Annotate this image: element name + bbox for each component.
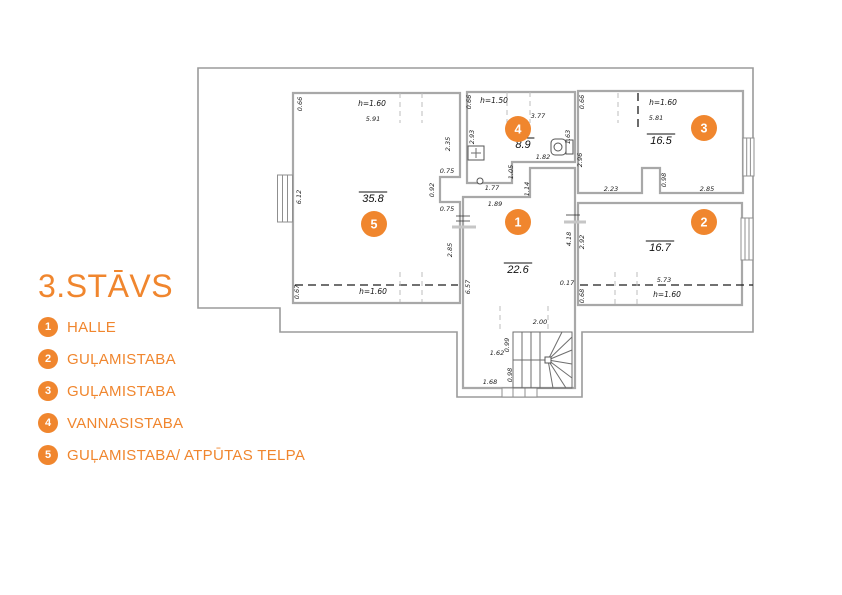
legend-item-label: HALLE [67,319,116,336]
dimension-label: 2.93 [468,130,476,144]
page-title: 3.STĀVS [38,268,305,305]
dimension-label: 1.05 [507,165,515,179]
room-marker-5: 5 [361,211,387,237]
room-marker-3: 3 [691,115,717,141]
dimension-label: 0.75 [440,167,454,175]
dimension-label: 1.82 [536,153,550,161]
dimension-label: 0.66 [578,95,586,109]
dimension-label: 0.98 [660,173,668,187]
dimension-label: h=1.60 [653,290,681,299]
svg-text:3: 3 [701,122,708,136]
dimension-label: 2.35 [444,137,452,151]
dimension-label: h=1.60 [358,99,386,108]
window-room2-right [741,218,753,260]
legend-item-number: 1 [38,317,58,337]
dimension-label: 2.00 [533,318,547,326]
dimension-label: 1.62 [490,349,504,357]
legend: 3.STĀVS 1HALLE2GUĻAMISTABA3GUĻAMISTABA4V… [38,268,305,465]
dimension-label: 5.73 [657,276,671,284]
legend-item-number: 5 [38,445,58,465]
dimension-label: 0.17 [560,279,575,287]
dimension-label: 2.96 [576,153,584,167]
dimension-label: 5.91 [366,115,380,123]
room-marker-2: 2 [691,209,717,235]
dimension-label: 0.66 [296,97,304,111]
stair-newel [545,357,551,363]
dimension-label: 5.81 [649,114,663,122]
legend-item-2: 2GUĻAMISTABA [38,349,305,369]
staircase [513,332,572,388]
legend-item-4: 4VANNASISTABA [38,413,305,433]
svg-text:5: 5 [371,218,378,232]
dimension-label: 1.63 [564,130,572,144]
dimension-label: h=1.60 [359,287,387,296]
room-area-label: 35.8 [362,193,384,205]
dimension-label: 0.66 [465,95,473,109]
svg-text:1: 1 [515,216,522,230]
legend-item-label: GUĻAMISTABA/ ATPŪTAS TELPA [67,447,305,464]
dimension-label: 1.68 [483,378,497,386]
room-area-label: 22.6 [506,264,529,276]
legend-item-number: 4 [38,413,58,433]
dimension-label: 6.57 [464,279,472,294]
dimension-label: 2.85 [446,243,454,257]
legend-items: 1HALLE2GUĻAMISTABA3GUĻAMISTABA4VANNASIST… [38,317,305,465]
hall-walls [463,168,575,388]
dimension-label: 1.77 [485,184,500,192]
svg-text:2: 2 [701,216,708,230]
legend-item-number: 3 [38,381,58,401]
dimension-label: 0.68 [578,289,586,303]
svg-text:4: 4 [515,123,522,137]
dimension-label: 2.23 [604,185,618,193]
room-markers: 22.6116.7216.538.9435.85 [359,115,717,276]
door-knob-icon [477,178,483,184]
dimension-label: 4.18 [565,232,573,246]
stair-winders [548,332,572,388]
dimension-label: 3.77 [531,112,546,120]
dimension-label: 0.98 [506,368,514,382]
legend-item-number: 2 [38,349,58,369]
dimension-label: 0.92 [428,183,436,197]
dimension-label: 2.92 [578,235,586,249]
room-marker-1: 1 [505,209,531,235]
dimension-label: h=1.60 [649,98,677,107]
legend-item-label: GUĻAMISTABA [67,383,176,400]
window-room5-left [278,175,293,222]
legend-item-label: GUĻAMISTABA [67,351,176,368]
legend-item-5: 5GUĻAMISTABA/ ATPŪTAS TELPA [38,445,305,465]
legend-item-3: 3GUĻAMISTABA [38,381,305,401]
dimension-label: 1.14 [523,182,531,196]
legend-item-1: 1HALLE [38,317,305,337]
dimension-label: 0.75 [440,205,454,213]
floorplan-page: 0.66h=1.605.912.356.120.750.920.752.850.… [0,0,842,595]
dimension-label: 6.12 [295,190,303,204]
dimension-label: 1.89 [488,200,502,208]
room-area-label: 16.7 [649,242,671,254]
window-stair-bottom [502,388,537,397]
dimension-label: h=1.50 [480,96,508,105]
room-area-label: 16.5 [650,135,672,147]
legend-item-label: VANNASISTABA [67,415,183,432]
room-marker-4: 4 [505,116,531,142]
window-room3-right [743,138,754,176]
sink-icon [468,146,484,160]
dimension-label: 2.85 [700,185,714,193]
